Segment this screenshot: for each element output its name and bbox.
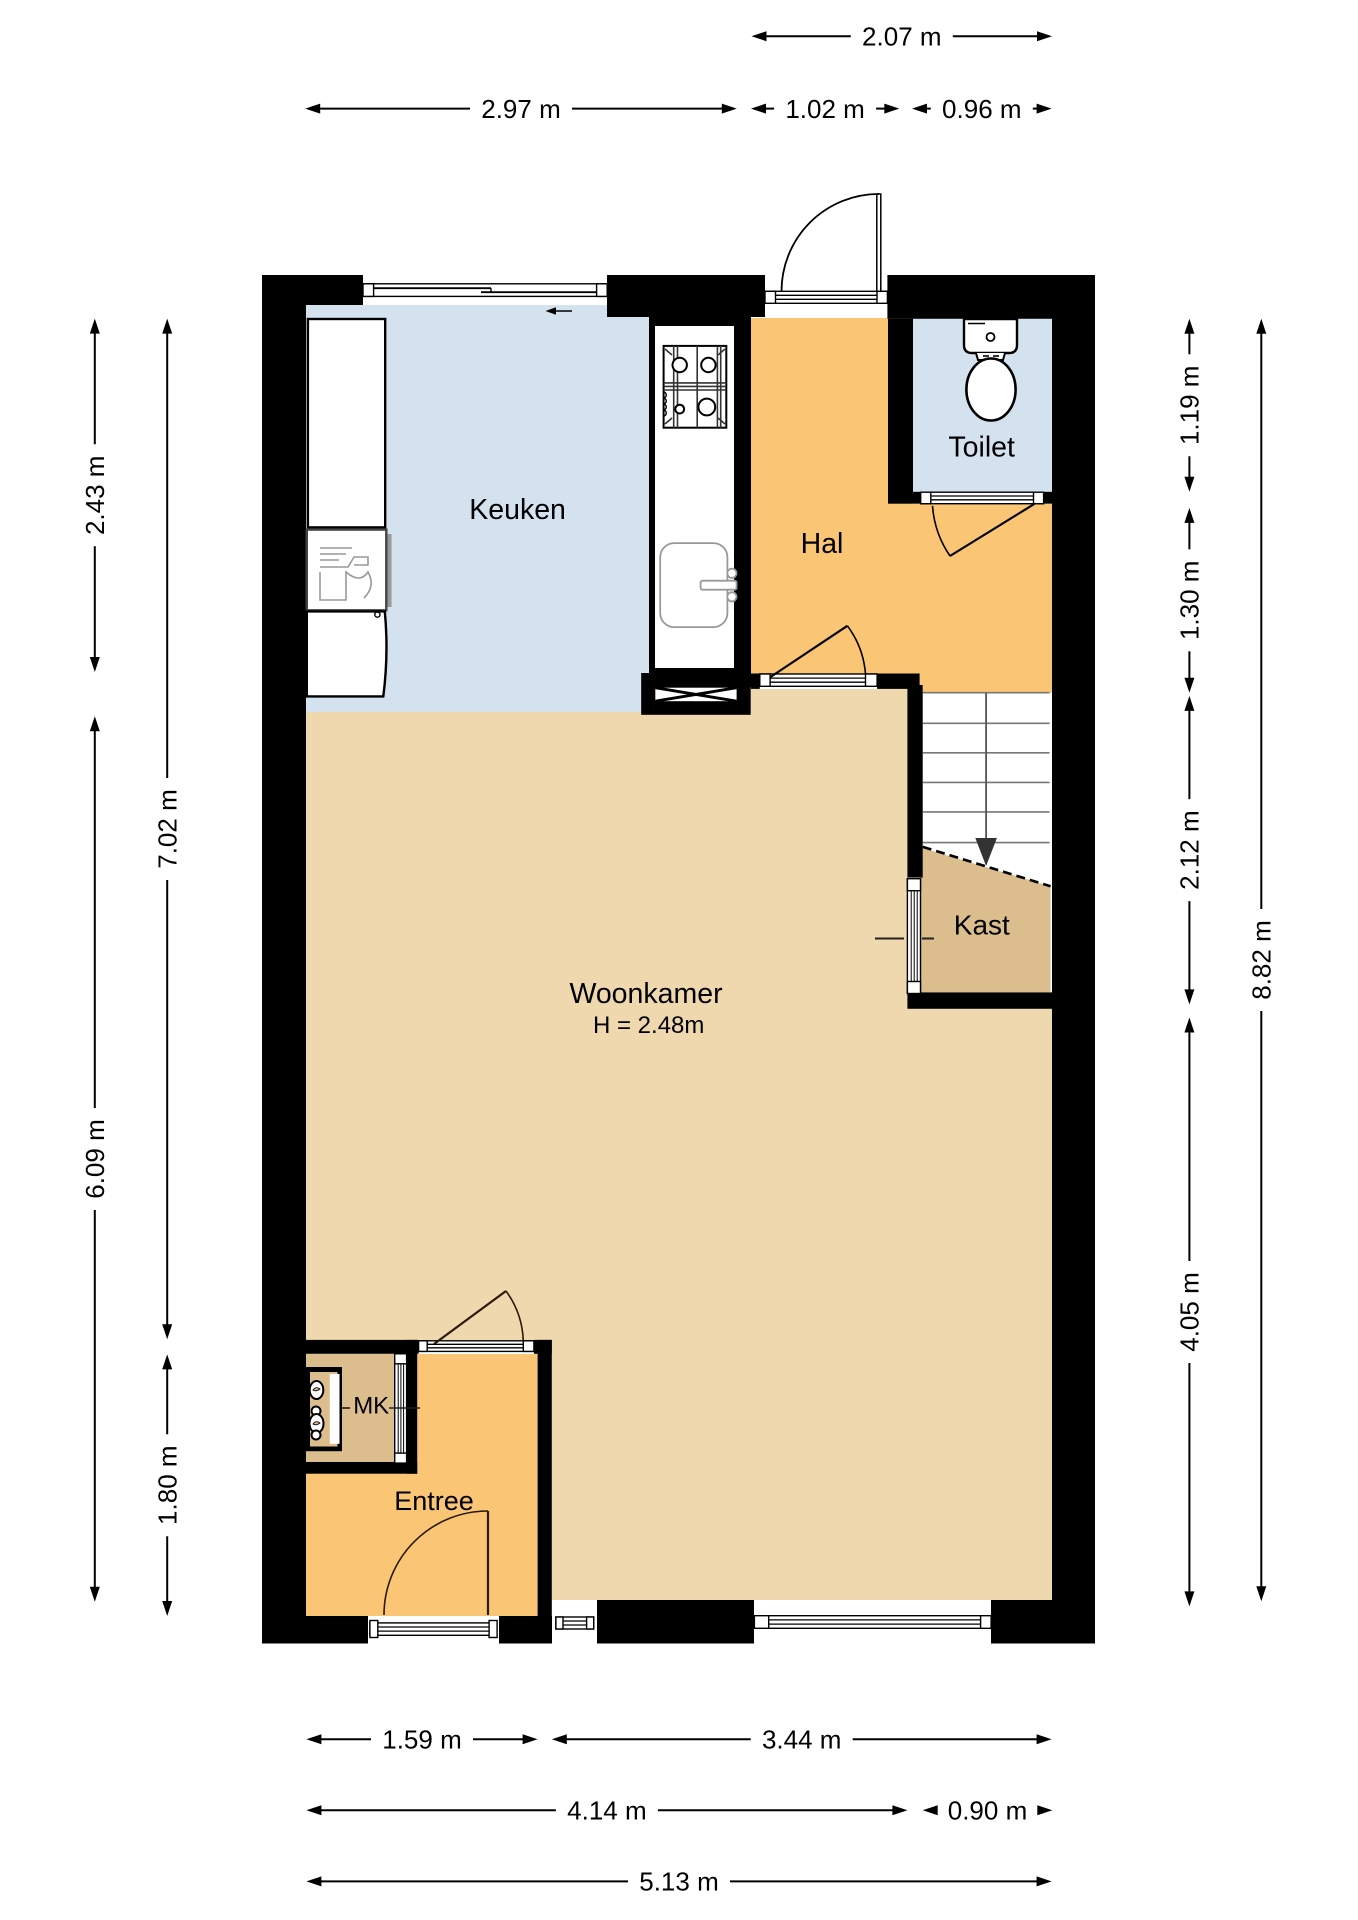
- svg-text:4.14 m: 4.14 m: [567, 1796, 647, 1826]
- svg-text:1.30 m: 1.30 m: [1175, 561, 1205, 641]
- svg-text:0.96 m: 0.96 m: [942, 94, 1022, 124]
- svg-text:2.07 m: 2.07 m: [862, 22, 942, 52]
- svg-text:Kast: Kast: [954, 910, 1010, 941]
- svg-text:4.05 m: 4.05 m: [1175, 1272, 1205, 1352]
- svg-text:Hal: Hal: [801, 528, 844, 560]
- svg-text:7.02 m: 7.02 m: [153, 789, 183, 869]
- svg-text:3.44 m: 3.44 m: [762, 1725, 842, 1755]
- svg-text:Entree: Entree: [394, 1486, 474, 1516]
- svg-text:5.13 m: 5.13 m: [639, 1867, 719, 1897]
- svg-text:Woonkamer: Woonkamer: [569, 978, 723, 1010]
- svg-text:1.80 m: 1.80 m: [153, 1445, 183, 1525]
- svg-text:0.90 m: 0.90 m: [948, 1796, 1028, 1826]
- svg-text:1.19 m: 1.19 m: [1175, 366, 1205, 446]
- svg-text:1.59 m: 1.59 m: [382, 1725, 462, 1755]
- svg-text:1.02 m: 1.02 m: [785, 94, 865, 124]
- svg-text:8.82 m: 8.82 m: [1247, 920, 1277, 1000]
- svg-text:6.09 m: 6.09 m: [80, 1119, 110, 1199]
- svg-text:2.43 m: 2.43 m: [80, 456, 110, 536]
- svg-text:2.97 m: 2.97 m: [481, 94, 561, 124]
- svg-text:Keuken: Keuken: [469, 494, 566, 526]
- svg-text:2.12 m: 2.12 m: [1175, 810, 1205, 890]
- svg-text:MK: MK: [353, 1392, 389, 1419]
- svg-text:H = 2.48m: H = 2.48m: [593, 1012, 704, 1039]
- svg-text:Toilet: Toilet: [948, 432, 1015, 464]
